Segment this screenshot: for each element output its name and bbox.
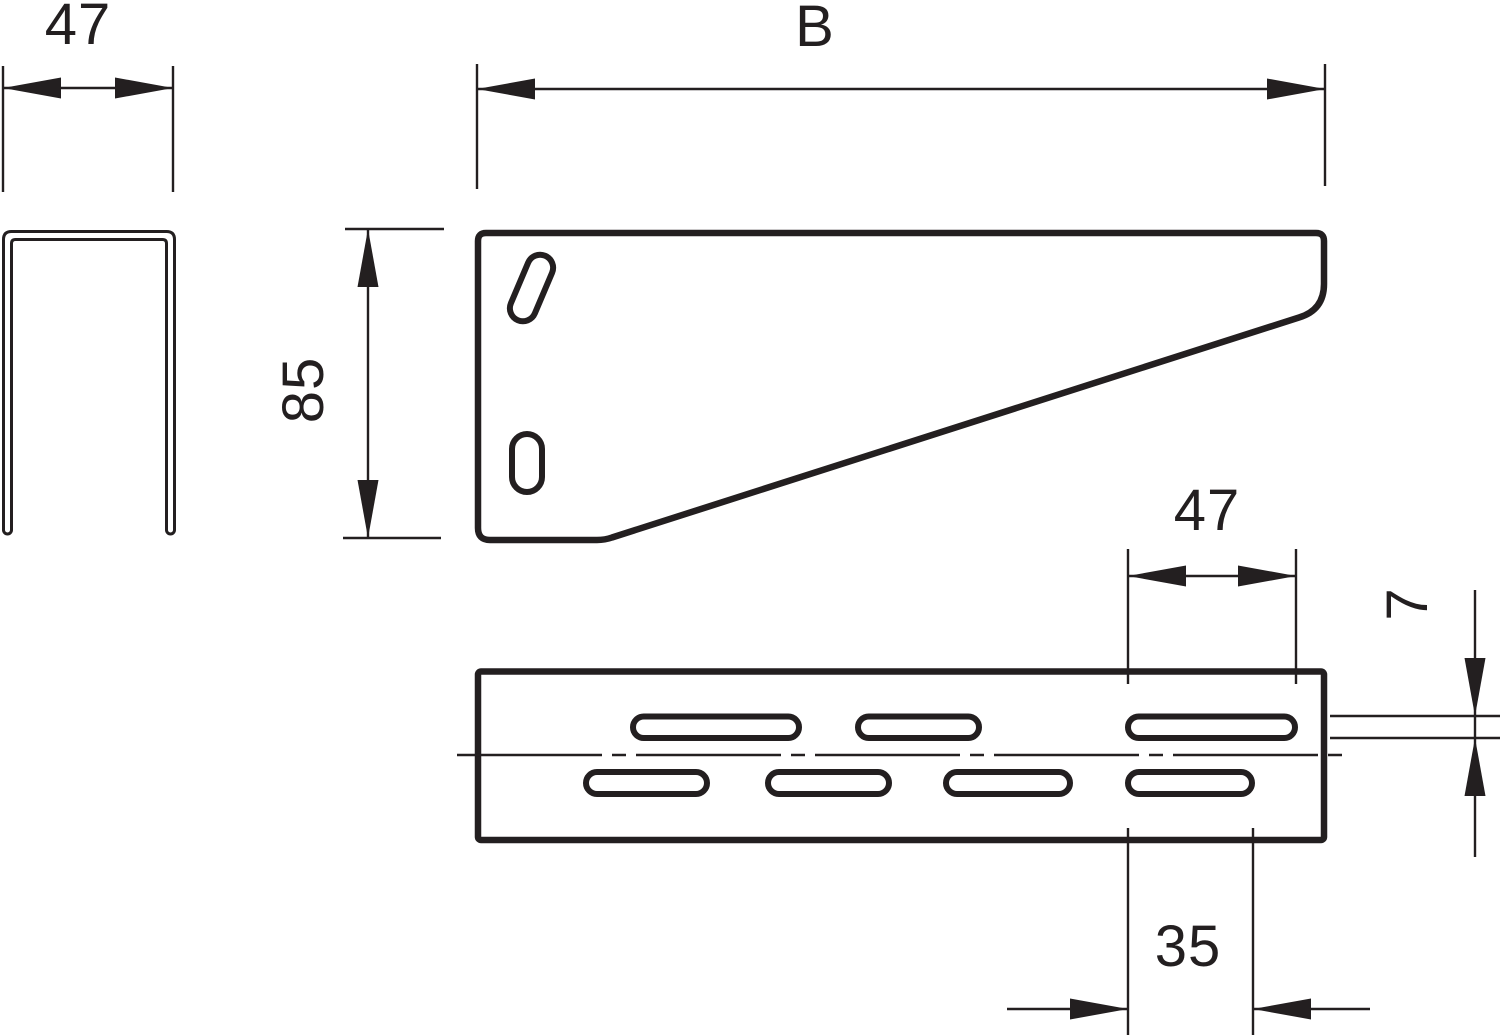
vertical-slot-hole xyxy=(512,434,542,492)
dimension-side-length: B xyxy=(477,0,1325,189)
dimension-side-height: 85 xyxy=(271,229,444,538)
arrowhead-right xyxy=(115,78,173,99)
arrowhead-left xyxy=(477,79,535,100)
dimension-label: 85 xyxy=(271,357,336,424)
u-channel-outline xyxy=(4,232,175,535)
plan-view xyxy=(457,672,1342,841)
arrowhead-left xyxy=(3,78,61,99)
profile-view xyxy=(4,232,175,535)
arrowhead-left xyxy=(1253,999,1311,1020)
dimension-label: 35 xyxy=(1155,914,1222,979)
dimension-slot-height: 7 xyxy=(1330,587,1500,857)
arrowhead-bottom xyxy=(358,480,379,538)
slot-hole xyxy=(633,717,799,739)
arrowhead-right xyxy=(1070,999,1128,1020)
dimension-slot-length: 47 xyxy=(1128,478,1296,684)
dimension-label: 47 xyxy=(45,0,112,57)
technical-drawing: 47 B 85 xyxy=(0,0,1500,1035)
dimension-label: 47 xyxy=(1174,478,1241,543)
slot-hole xyxy=(586,772,707,794)
slot-hole xyxy=(858,717,979,739)
arrowhead-down xyxy=(1465,658,1486,716)
arrowhead-right xyxy=(1267,79,1325,100)
slot-hole xyxy=(768,772,889,794)
dimension-slot-short: 35 xyxy=(1007,828,1370,1035)
slot-hole xyxy=(1128,717,1295,739)
arrowhead-left xyxy=(1128,566,1186,587)
arrowhead-right xyxy=(1238,566,1296,587)
arrowhead-top xyxy=(358,229,379,287)
slot-hole xyxy=(1128,772,1252,794)
dimension-profile-width: 47 xyxy=(3,0,173,192)
arrowhead-up xyxy=(1465,738,1486,796)
dimension-label: 7 xyxy=(1375,587,1440,620)
slot-hole xyxy=(946,772,1070,794)
dimension-label: B xyxy=(795,0,835,59)
